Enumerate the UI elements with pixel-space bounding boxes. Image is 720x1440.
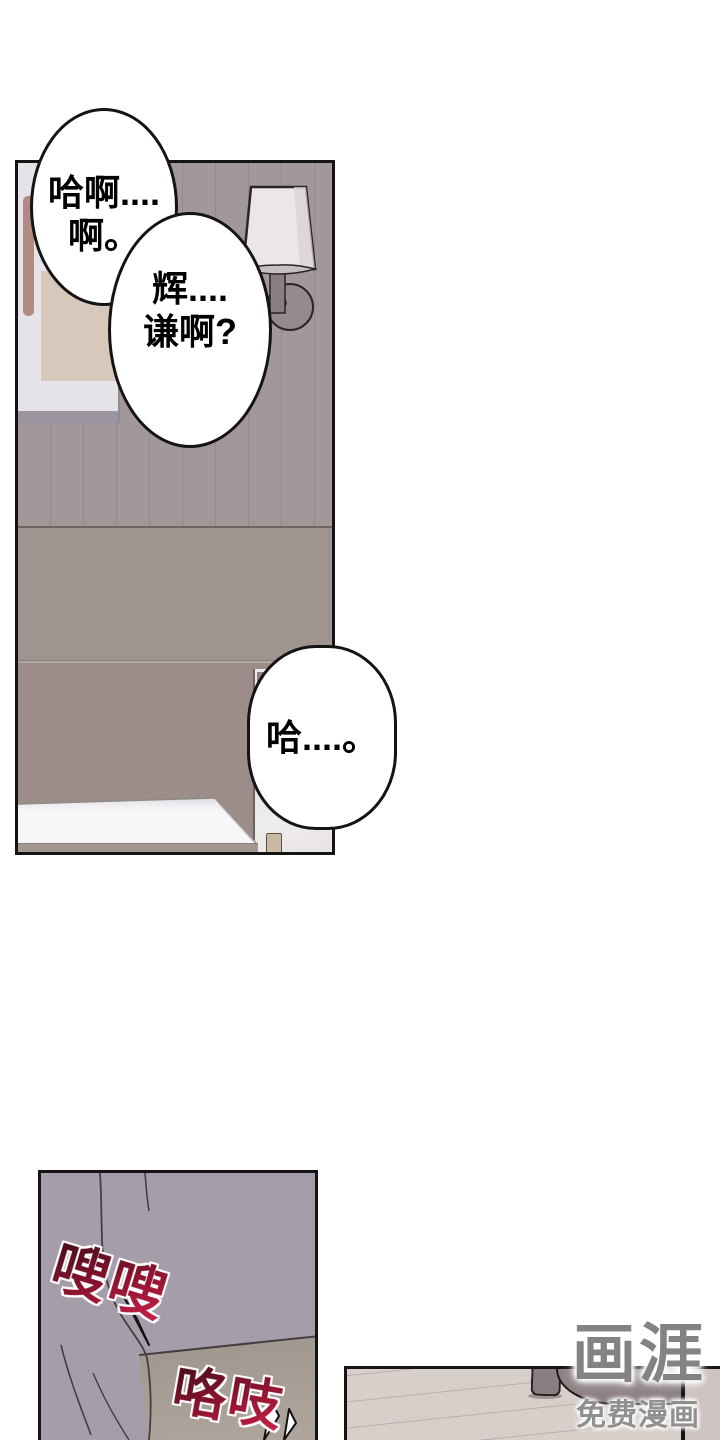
panel-couch: 嗖嗖 咯吱 [38,1170,318,1440]
motion-sliver [284,1409,296,1440]
watermark-tagline: 免费漫画 [576,1390,700,1434]
lamp-arm [270,269,285,313]
speech-text: 辉.... [152,267,228,310]
comic-page: 哈啊.... 啊。 辉.... 谦啊? 哈....。 嗖嗖 咯吱 画涯 免费漫 [0,0,720,1440]
speech-text: 哈....。 [266,716,378,759]
speech-bubble: 辉.... 谦啊? [108,212,272,448]
picture-frame-edge [18,411,118,423]
speech-bubble: 哈....。 [247,645,397,830]
wall-lower [18,528,332,660]
speech-text: 谦啊? [143,310,237,353]
speech-text: 哈啊.... [48,171,160,214]
watermark-logo: 画涯 [572,1318,706,1390]
bed-base-strip [18,843,258,853]
wooden-peg [266,833,282,854]
